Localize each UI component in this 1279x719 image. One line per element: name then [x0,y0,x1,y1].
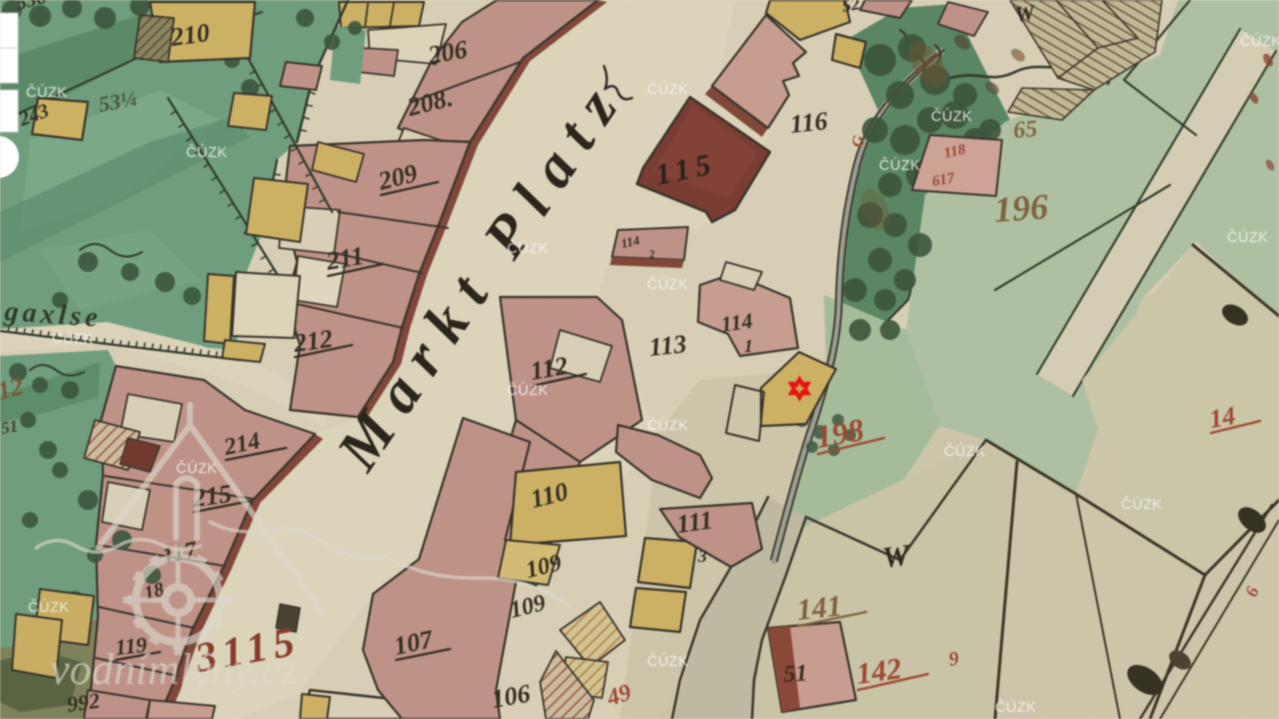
svg-text:ČÚZK: ČÚZK [28,599,69,616]
svg-text:ČÚZK: ČÚZK [647,653,688,670]
svg-text:ČÚZK: ČÚZK [176,460,217,477]
svg-text:ČÚZK: ČÚZK [186,144,227,161]
svg-text:ČÚZK: ČÚZK [1240,33,1279,50]
svg-text:ČÚZK: ČÚZK [647,81,688,98]
svg-text:ČÚZK: ČÚZK [995,699,1036,716]
svg-text:ČÚZK: ČÚZK [507,240,548,257]
svg-text:ČÚZK: ČÚZK [52,330,93,347]
svg-text:ČÚZK: ČÚZK [944,443,985,460]
svg-text:ČÚZK: ČÚZK [507,382,548,399]
svg-text:ČÚZK: ČÚZK [1121,496,1162,513]
svg-text:ČÚZK: ČÚZK [26,84,67,101]
svg-text:ČÚZK: ČÚZK [647,417,688,434]
svg-text:ČÚZK: ČÚZK [1227,229,1268,246]
svg-text:ČÚZK: ČÚZK [931,108,972,125]
svg-text:ČÚZK: ČÚZK [647,276,688,293]
svg-text:vodnímlýny.cz: vodnímlýny.cz [50,645,298,694]
svg-text:ČÚZK: ČÚZK [879,157,920,174]
